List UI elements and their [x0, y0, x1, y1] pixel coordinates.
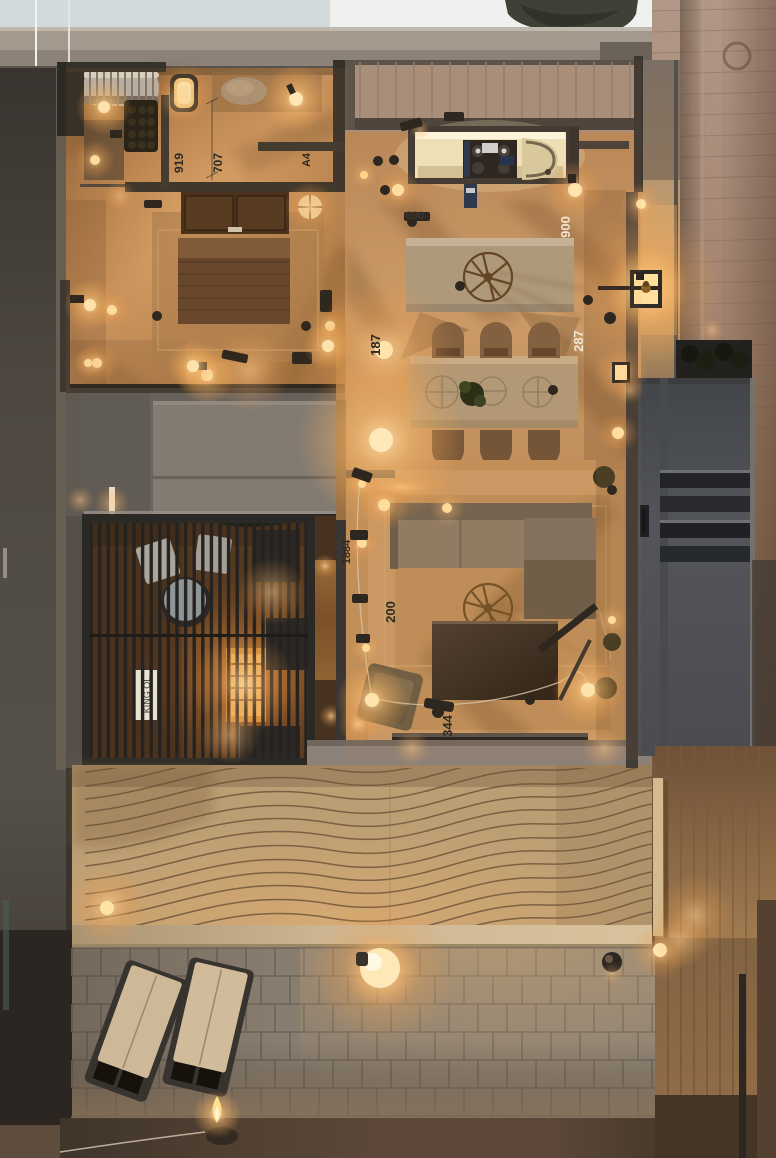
svg-text:690: 690 — [406, 210, 424, 222]
svg-text:919: 919 — [172, 153, 186, 173]
svg-text:187: 187 — [368, 334, 383, 356]
svg-text:344: 344 — [440, 714, 455, 736]
svg-text:900: 900 — [558, 216, 573, 238]
svg-text:287: 287 — [571, 330, 586, 352]
svg-text:A4: A4 — [301, 152, 313, 167]
svg-text:1884: 1884 — [341, 539, 353, 564]
svg-text:200: 200 — [383, 601, 398, 623]
svg-text:707: 707 — [211, 153, 225, 173]
